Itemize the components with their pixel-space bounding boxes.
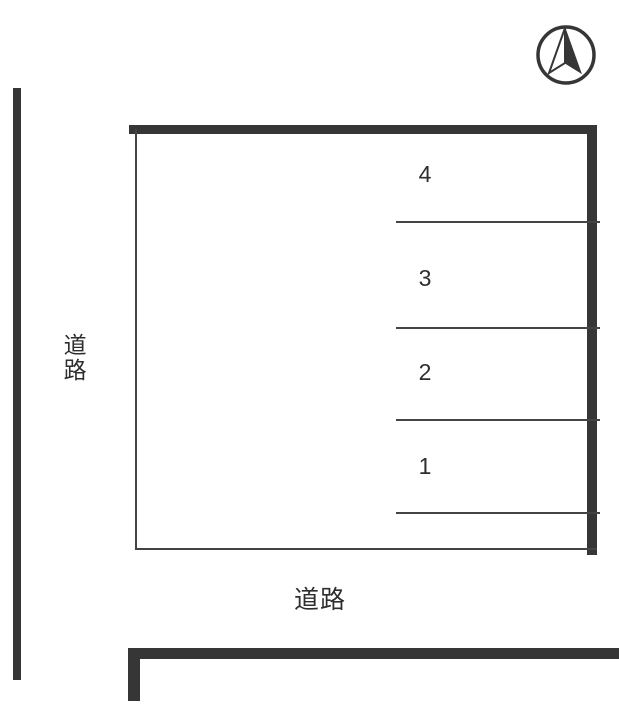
plot-left-border [135,129,137,549]
north-compass-icon [534,23,598,87]
parking-site-plan: 道路 4 3 2 1 道路 [0,0,619,708]
left-road-label: 道路 [61,333,85,383]
space-number: 2 [413,361,437,384]
bottom-road-edge-vertical [128,648,140,701]
bottom-road-label: 道路 [294,587,346,615]
space-number: 1 [413,455,437,478]
space-divider-4 [396,512,600,514]
plot-top-border [129,125,597,134]
left-road-edge-line [13,88,21,680]
bottom-road-edge-horizontal [128,648,619,659]
space-divider-2 [396,327,600,329]
plot-right-border [587,125,597,555]
space-number: 4 [413,163,437,186]
space-divider-1 [396,221,600,223]
space-divider-3 [396,419,600,421]
plot-bottom-border [135,548,597,550]
space-number: 3 [413,267,437,290]
